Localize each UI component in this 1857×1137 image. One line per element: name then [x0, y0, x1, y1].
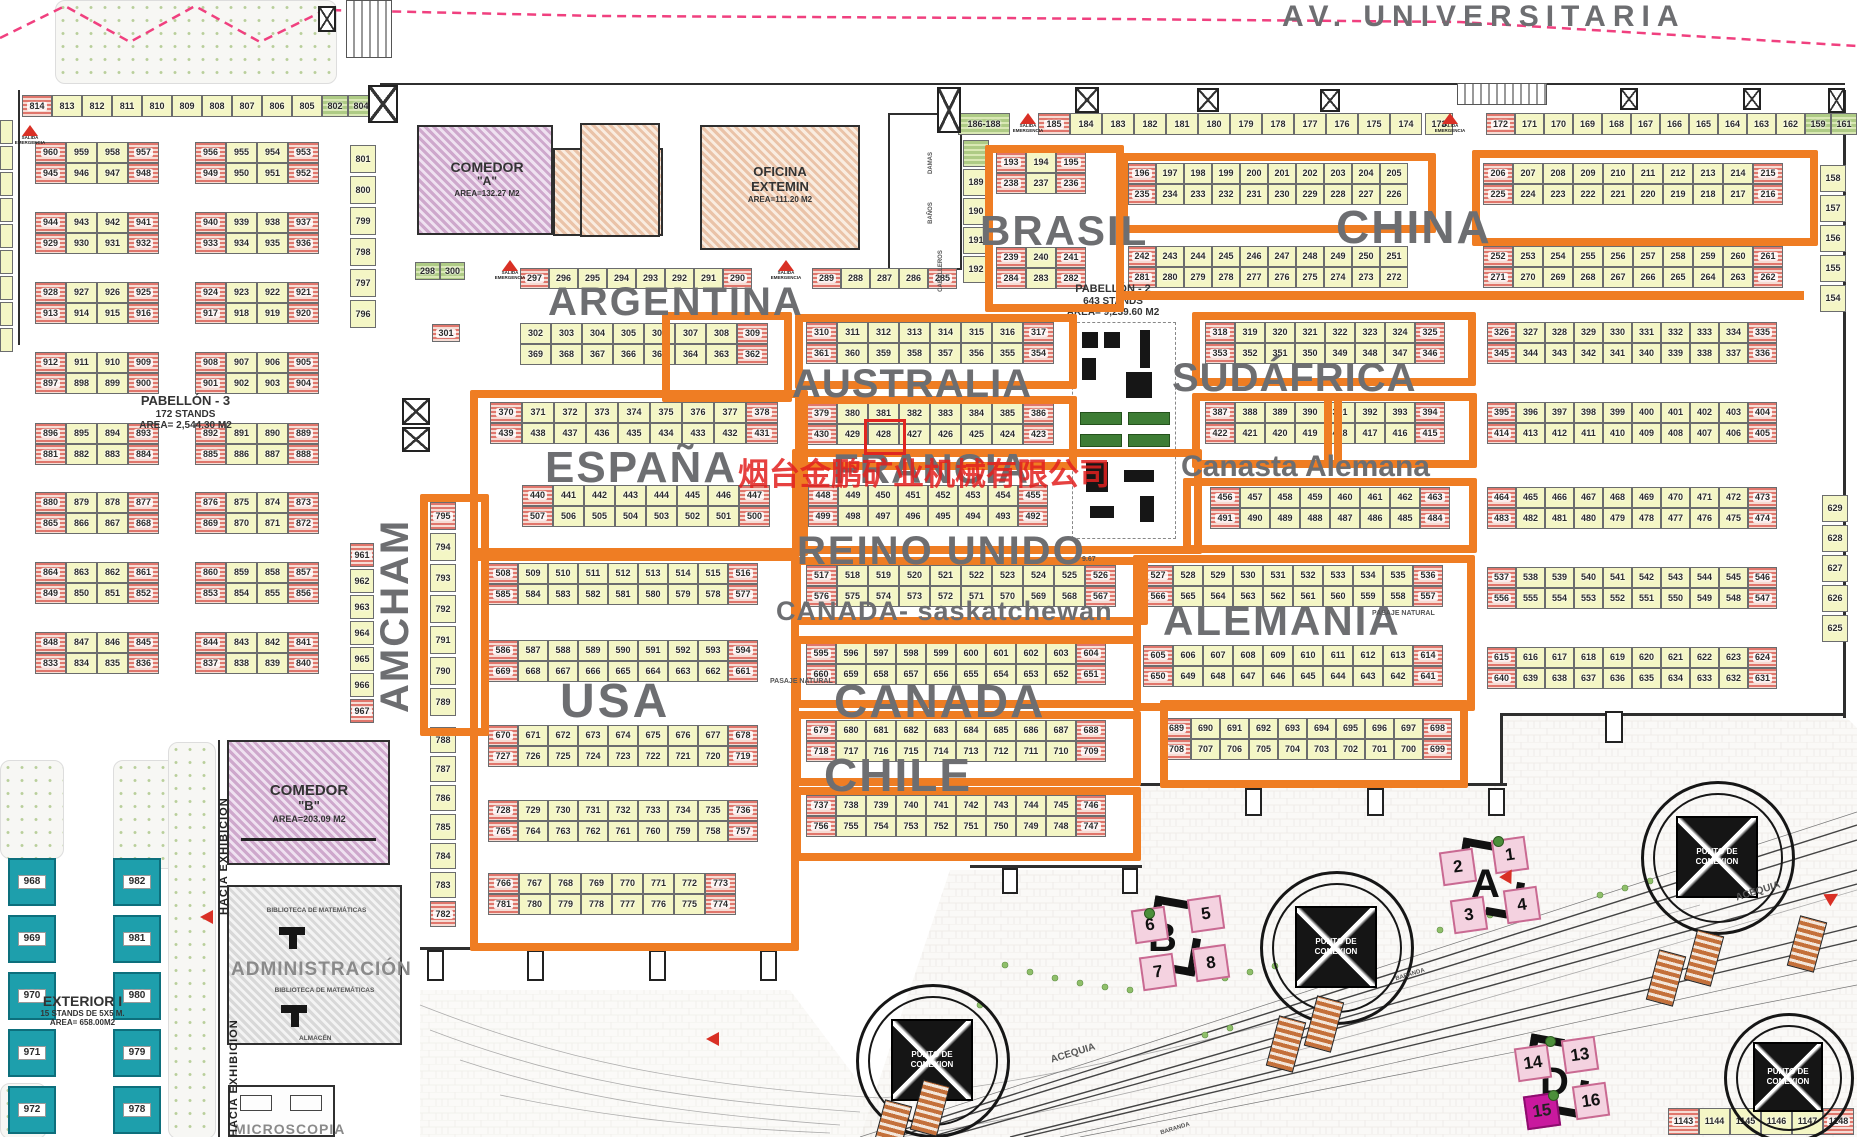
elevator-shaft: [402, 398, 430, 425]
stand: 617: [1545, 647, 1574, 668]
stand-number: 545: [1726, 573, 1741, 582]
stand: 362: [737, 344, 768, 365]
stand-number: 425: [969, 430, 984, 439]
stand-number: 958: [105, 148, 120, 157]
stand: 593: [698, 640, 728, 661]
stand: 814: [22, 95, 52, 117]
stand: 273: [1352, 267, 1380, 288]
stand-row: 766767768769770771772773: [488, 873, 736, 894]
stand-row: 756755754753752751750749748747: [806, 816, 1106, 837]
stand: 263: [1723, 267, 1753, 288]
stand: 812: [82, 95, 112, 117]
stand: 854: [226, 583, 257, 604]
stand: 515: [698, 563, 728, 584]
stand-number: 262: [1758, 273, 1777, 282]
stand: 602: [1016, 643, 1046, 664]
stand-number: 757: [733, 827, 752, 836]
stand: 181: [1166, 113, 1198, 135]
stand-number: 939: [234, 218, 249, 227]
stand: 314: [930, 322, 961, 343]
stand: 154: [1820, 285, 1846, 312]
stand-row: 913914915916: [35, 303, 159, 324]
stand: 765: [488, 821, 518, 842]
stand: 868: [128, 513, 159, 534]
stand: 863: [66, 562, 97, 583]
gate-number-3: 3: [1450, 896, 1488, 934]
stand: 611: [1323, 645, 1353, 666]
stand: 327: [1516, 322, 1545, 343]
stand-number: 581: [615, 590, 630, 599]
stand-column: 788787786785784783782: [430, 727, 456, 930]
stand-number: 252: [1488, 252, 1507, 261]
stand-number: 178: [1270, 120, 1285, 129]
stand: 172: [1486, 113, 1515, 135]
stand-number: 590: [615, 646, 630, 655]
stand-number: 391: [1332, 408, 1347, 417]
stand-number: 597: [873, 649, 888, 658]
stand: 594: [728, 640, 758, 661]
stand: 882: [66, 444, 97, 465]
stand: 605: [1143, 645, 1173, 666]
stand: 898: [66, 373, 97, 394]
stand: 800: [350, 176, 376, 204]
stand: 773: [705, 873, 736, 894]
stand-row: 869870871872: [195, 513, 319, 534]
stand-number: 501: [716, 512, 731, 521]
stand-number: 508: [493, 569, 512, 578]
stand: 784: [430, 843, 456, 869]
stand-number: 963: [354, 603, 369, 612]
stand-number: 488: [1307, 514, 1322, 523]
stand-number: 862: [105, 568, 120, 577]
stand: 315: [961, 322, 992, 343]
stand-number: 306: [652, 329, 667, 338]
stand-row: 379380381382383384385386: [806, 403, 1054, 424]
stand: 396: [1516, 402, 1545, 423]
stand: 473: [1748, 487, 1777, 508]
stand: 409: [1632, 423, 1661, 444]
stand-number: 841: [294, 638, 313, 647]
stand-number: 606: [1180, 651, 1195, 660]
stand-number: 728: [493, 806, 512, 815]
stand-row: 422421420419418417416415: [1205, 423, 1445, 444]
stand-number: 228: [1330, 190, 1345, 199]
salida-emergencia-label: SALIDA EMERGENCIA: [1428, 124, 1472, 134]
stand: 333: [1690, 322, 1719, 343]
stand: 901: [195, 373, 226, 394]
stand: 312: [868, 322, 899, 343]
stand-row: 345344343342341340339338337336: [1487, 343, 1777, 364]
stand: 693: [1278, 718, 1307, 739]
stand: 735: [698, 800, 728, 821]
stand-number: 849: [41, 589, 60, 598]
stand: 411: [1574, 423, 1603, 444]
stand-number: 735: [705, 806, 720, 815]
stand: 402: [1690, 402, 1719, 423]
stand-number: 921: [294, 288, 313, 297]
stand: 399: [1603, 402, 1632, 423]
stand: 598: [896, 643, 926, 664]
stand: 417: [1355, 423, 1385, 444]
stand-number: 622: [1697, 653, 1712, 662]
stand: 298: [415, 262, 440, 280]
stand: 838: [226, 653, 257, 674]
stand: 757: [728, 821, 758, 842]
stand-number: 897: [41, 379, 60, 388]
stand: 917: [195, 303, 226, 324]
comedor-a-name: COMEDOR: [427, 159, 547, 175]
stand: 386: [1023, 403, 1054, 424]
stand-number: 852: [134, 589, 153, 598]
zone-label-avenue: AV. UNIVERSITARIA: [1282, 2, 1686, 32]
stand-number: 194: [1033, 158, 1048, 167]
stand-number: 360: [845, 349, 860, 358]
stand: 216: [1753, 184, 1783, 205]
stand-number: 485: [1397, 514, 1412, 523]
stand: 782: [430, 901, 456, 927]
stand-number: 445: [685, 491, 700, 500]
stand: 218: [1693, 184, 1723, 205]
stand-number: 507: [528, 512, 547, 521]
stand-number: 345: [1492, 349, 1511, 358]
stand-number: 882: [74, 450, 89, 459]
stand-number: 531: [1270, 571, 1285, 580]
stand-number: 805: [299, 102, 314, 111]
stand-number: 969: [18, 932, 47, 946]
stand: 861: [128, 562, 159, 583]
stand-number: 895: [74, 429, 89, 438]
stand: 874: [257, 492, 288, 513]
stand-number: 614: [1418, 651, 1437, 660]
stand: 232: [1212, 184, 1240, 205]
stand: 727: [488, 746, 518, 767]
stand-number: 748: [1053, 822, 1068, 831]
stand: 238: [996, 173, 1026, 194]
stand: 165: [1689, 113, 1718, 135]
stand: 846: [97, 632, 128, 653]
gate-hinge-dot: [1545, 1036, 1556, 1047]
stand: 698: [1423, 718, 1452, 739]
stand-number: 287: [877, 274, 892, 283]
stand: 920: [288, 303, 319, 324]
stand: 637: [1574, 668, 1603, 689]
stand-number: 316: [1000, 328, 1015, 337]
stand-number: 721: [675, 752, 690, 761]
stand-number: 477: [1668, 514, 1683, 523]
stand-number: 403: [1726, 408, 1741, 417]
stand-number: 833: [41, 659, 60, 668]
stand-number: 205: [1386, 169, 1401, 178]
stand-number: 777: [620, 900, 635, 909]
stand: 701: [1365, 739, 1394, 760]
stand: 747: [1076, 816, 1106, 837]
stand: 275: [1296, 267, 1324, 288]
stand-number: 711: [1024, 747, 1039, 756]
stand: 700: [1394, 739, 1423, 760]
stand: 587: [518, 640, 548, 661]
stand-number: 968: [18, 875, 47, 889]
stand: 432: [714, 423, 746, 444]
stand-number: 722: [645, 752, 660, 761]
structural-pillar: [427, 950, 444, 981]
stand: 914: [66, 303, 97, 324]
stand-number: 527: [1148, 571, 1167, 580]
stand-number: 719: [733, 752, 752, 761]
stand-number: 611: [1331, 651, 1346, 660]
stand-number: 802: [327, 102, 342, 111]
stand: 755: [836, 816, 866, 837]
stand: 904: [288, 373, 319, 394]
stand: 703: [1307, 739, 1336, 760]
stand-number: 776: [651, 900, 666, 909]
stand: 759: [668, 821, 698, 842]
stand-number: 637: [1581, 674, 1596, 683]
stand-number: 265: [1670, 273, 1685, 282]
stand-number: 482: [1523, 514, 1538, 523]
stand-number: 640: [1492, 674, 1511, 683]
stand: 302: [520, 323, 551, 344]
stand: 220: [1633, 184, 1663, 205]
elevator-shaft: [402, 427, 430, 452]
stand: 934: [226, 233, 257, 254]
stand-number: 670: [493, 731, 512, 740]
stand-number: 379: [812, 409, 831, 418]
punto-de-conexion-label: PUNTO DE CONEXION: [1678, 847, 1756, 866]
zone-label-china: CHINA: [1336, 204, 1492, 250]
stand-number: 201: [1274, 169, 1289, 178]
stand: 734: [668, 800, 698, 821]
stand: 334: [1719, 322, 1748, 343]
stand-number: 248: [1302, 252, 1317, 261]
stand-number: 605: [1148, 651, 1167, 660]
stand-number: 868: [134, 519, 153, 528]
stand-number: 879: [74, 498, 89, 507]
stand-number: 908: [201, 358, 220, 367]
stand: 764: [518, 821, 548, 842]
stand-number: 797: [355, 279, 370, 288]
stand: 287: [870, 268, 899, 289]
elevator-shaft: [1828, 88, 1845, 113]
stand: 271: [1483, 267, 1513, 288]
stand-row: 225224223222221220219218217216: [1483, 184, 1783, 205]
stand-row: 206207208209210211212213214215: [1483, 163, 1783, 184]
stand-row: 370371372373374375376377378: [490, 402, 778, 423]
stand-number: 388: [1242, 408, 1257, 417]
stand-number: 736: [733, 806, 752, 815]
stand: 322: [1325, 322, 1355, 343]
stand-number: 387: [1210, 408, 1229, 417]
stand: 971: [8, 1029, 56, 1077]
stand-number: 368: [559, 350, 574, 359]
punto-de-conexion-marker: PUNTO DE CONEXION: [1753, 1042, 1823, 1112]
stand: 644: [1323, 666, 1353, 687]
stand: 885: [195, 444, 226, 465]
stand: 769: [581, 873, 612, 894]
stand: 484: [1420, 508, 1450, 529]
pabellon3-stands: 172 STANDS: [118, 409, 253, 421]
stand: 915: [97, 303, 128, 324]
stand-number: 474: [1753, 514, 1772, 523]
stand: 697: [1394, 718, 1423, 739]
stand-number: 341: [1610, 349, 1625, 358]
stand-number: 236: [1061, 179, 1080, 188]
stand: 795: [430, 502, 456, 530]
stand-number: 1144: [1705, 1117, 1725, 1126]
stand-row: 491490489488487486485484: [1210, 508, 1450, 529]
stand: 978: [113, 1086, 161, 1134]
stand-number: 860: [201, 568, 220, 577]
small-label: CABALLEROS: [938, 250, 944, 292]
stand: 214: [1723, 163, 1753, 184]
stand-number: 723: [615, 752, 630, 761]
stand-row: 585584583582581580579578577: [488, 584, 758, 605]
stand-number: 170: [1551, 120, 1566, 129]
stand: 636: [1603, 668, 1632, 689]
stand: 365: [644, 344, 675, 365]
stand: 843: [226, 632, 257, 653]
stand-number: 358: [907, 349, 922, 358]
stand: 318: [1205, 322, 1235, 343]
stand: 639: [1516, 668, 1545, 689]
stand: 890: [257, 423, 288, 444]
zone-label-australia: AUSTRALIA: [792, 364, 1032, 404]
stand: 492: [1018, 506, 1048, 527]
stand-row: 430429428427426425424423: [806, 424, 1054, 445]
stand: 306: [644, 323, 675, 344]
stand: 972: [8, 1086, 56, 1134]
stand-number: 304: [590, 329, 605, 338]
stand-number: 741: [933, 801, 948, 810]
stand: 430: [806, 424, 837, 445]
stand-number: 211: [1641, 169, 1656, 178]
stand: 708: [1162, 739, 1191, 760]
gate-hinge-dot: [1548, 1090, 1559, 1101]
stand-number: 579: [675, 590, 690, 599]
stand: 928: [35, 282, 66, 303]
stand: 215: [1753, 163, 1783, 184]
structural-pillar: [1488, 788, 1505, 816]
stand-number: 340: [1639, 349, 1654, 358]
stand-number: 479: [1610, 514, 1625, 523]
stand-number: 737: [811, 801, 830, 810]
stand-row: 924923922921: [195, 282, 319, 303]
stand: 706: [1220, 739, 1249, 760]
stand: 633: [1690, 668, 1719, 689]
stand: 336: [1748, 343, 1777, 364]
stand: 221: [1603, 184, 1633, 205]
zone-label-espana: ESPAÑA: [545, 446, 737, 490]
stand: 465: [1516, 487, 1545, 508]
stand: 553: [1574, 588, 1603, 609]
stand: 345: [1487, 343, 1516, 364]
stand: 867: [97, 513, 128, 534]
stand: 722: [638, 746, 668, 767]
stand-number: 253: [1520, 252, 1535, 261]
stand-number: 769: [589, 879, 604, 888]
stand-number: 237: [1033, 179, 1048, 188]
stand-number: 708: [1167, 745, 1186, 754]
stand-number: 594: [733, 646, 752, 655]
stand-number: 202: [1302, 169, 1317, 178]
stand: 748: [1046, 816, 1076, 837]
small-label: DAMAS: [928, 152, 934, 174]
stand: 696: [1365, 718, 1394, 739]
stand: 262: [1753, 267, 1783, 288]
zone-label-brasil: BRASIL: [980, 210, 1148, 252]
stand: 690: [1191, 718, 1220, 739]
stand-number: 526: [1091, 571, 1110, 580]
stand: 231: [1240, 184, 1268, 205]
stand-number: 744: [1023, 801, 1038, 810]
stand: 736: [728, 800, 758, 821]
stand: 543: [1661, 567, 1690, 588]
small-label: PASAJE NATURAL: [770, 678, 833, 685]
stand-number: 609: [1270, 651, 1285, 660]
stand: 642: [1383, 666, 1413, 687]
stand: 414: [1487, 423, 1516, 444]
stand: 650: [1143, 666, 1173, 687]
stand: 356: [961, 343, 992, 364]
gate-number-4: 4: [1503, 886, 1541, 924]
stand-number: 344: [1523, 349, 1538, 358]
stand-number: 692: [1256, 724, 1271, 733]
stand: 651: [1076, 664, 1106, 685]
stand: 501: [708, 506, 739, 527]
stand: 753: [896, 816, 926, 837]
stand-number: 675: [645, 731, 660, 740]
stand-row: 318319320321322323324325: [1205, 322, 1445, 343]
stand-number: 218: [1700, 190, 1715, 199]
stand: 534: [1353, 565, 1383, 586]
stand-number: 372: [562, 408, 577, 417]
stand: 500: [739, 506, 770, 527]
stand-number: 734: [675, 806, 690, 815]
stand-number: 743: [993, 801, 1008, 810]
stand-number: 890: [265, 429, 280, 438]
stand-number: 438: [530, 429, 545, 438]
stand-number: 874: [265, 498, 280, 507]
stand-number: 381: [876, 409, 891, 418]
stand: 272: [1380, 267, 1408, 288]
stand-number: 231: [1246, 190, 1261, 199]
stand: 223: [1543, 184, 1573, 205]
stand-number: 256: [1610, 252, 1625, 261]
gate-number-16: 16: [1572, 1082, 1610, 1120]
stand: 952: [288, 163, 319, 184]
stand: 596: [836, 643, 866, 664]
stand-number: 245: [1218, 252, 1233, 261]
stand: 485: [1390, 508, 1420, 529]
stand: 953: [288, 142, 319, 163]
stand-number: 710: [1053, 747, 1068, 756]
punto-de-conexion-label: PUNTO DE CONEXION: [893, 1050, 971, 1069]
stand-row: 802804: [322, 95, 374, 117]
stand-number: 872: [294, 519, 313, 528]
stand-number: 238: [1001, 179, 1020, 188]
stand: 905: [288, 352, 319, 373]
stand: 549: [1690, 588, 1719, 609]
stand-number: 644: [1330, 672, 1345, 681]
stand-number: 435: [626, 429, 641, 438]
stand: 542: [1632, 567, 1661, 588]
stand: 401: [1661, 402, 1690, 423]
stand: 626: [1822, 585, 1848, 612]
stand-number: 393: [1392, 408, 1407, 417]
building-administracion: BIBLIOTECA DE MATEMÁTICAS ADMINISTRACIÓN…: [227, 885, 402, 1045]
stand-number: 586: [493, 646, 512, 655]
stand-number: 837: [201, 659, 220, 668]
stand: 400: [1632, 402, 1661, 423]
